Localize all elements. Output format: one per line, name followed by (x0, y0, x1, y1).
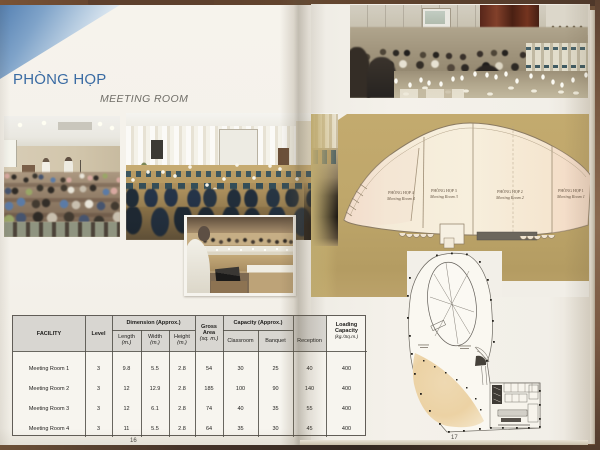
svg-text:PHÒNG HỌP 4: PHÒNG HỌP 4 (388, 190, 414, 195)
svg-text:Meeting Room 2: Meeting Room 2 (495, 195, 524, 200)
svg-text:Meeting Room 3: Meeting Room 3 (429, 194, 458, 199)
svg-text:PHÒNG HỌP 2: PHÒNG HỌP 2 (497, 189, 523, 194)
svg-text:PHÒNG HỌP 3: PHÒNG HỌP 3 (431, 188, 457, 193)
svg-text:Meeting Room 4: Meeting Room 4 (386, 196, 415, 201)
